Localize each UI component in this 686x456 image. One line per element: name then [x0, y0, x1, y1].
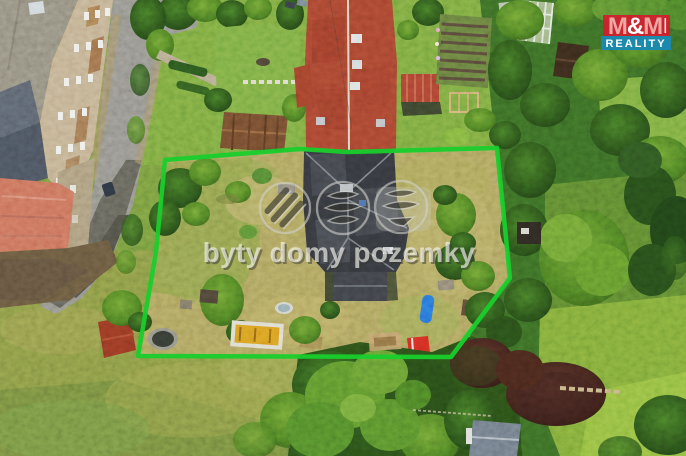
svg-text:byty domy pozemky: byty domy pozemky [203, 237, 476, 268]
svg-text:M&M: M&M [608, 13, 662, 40]
svg-text:REALITY: REALITY [605, 38, 666, 50]
